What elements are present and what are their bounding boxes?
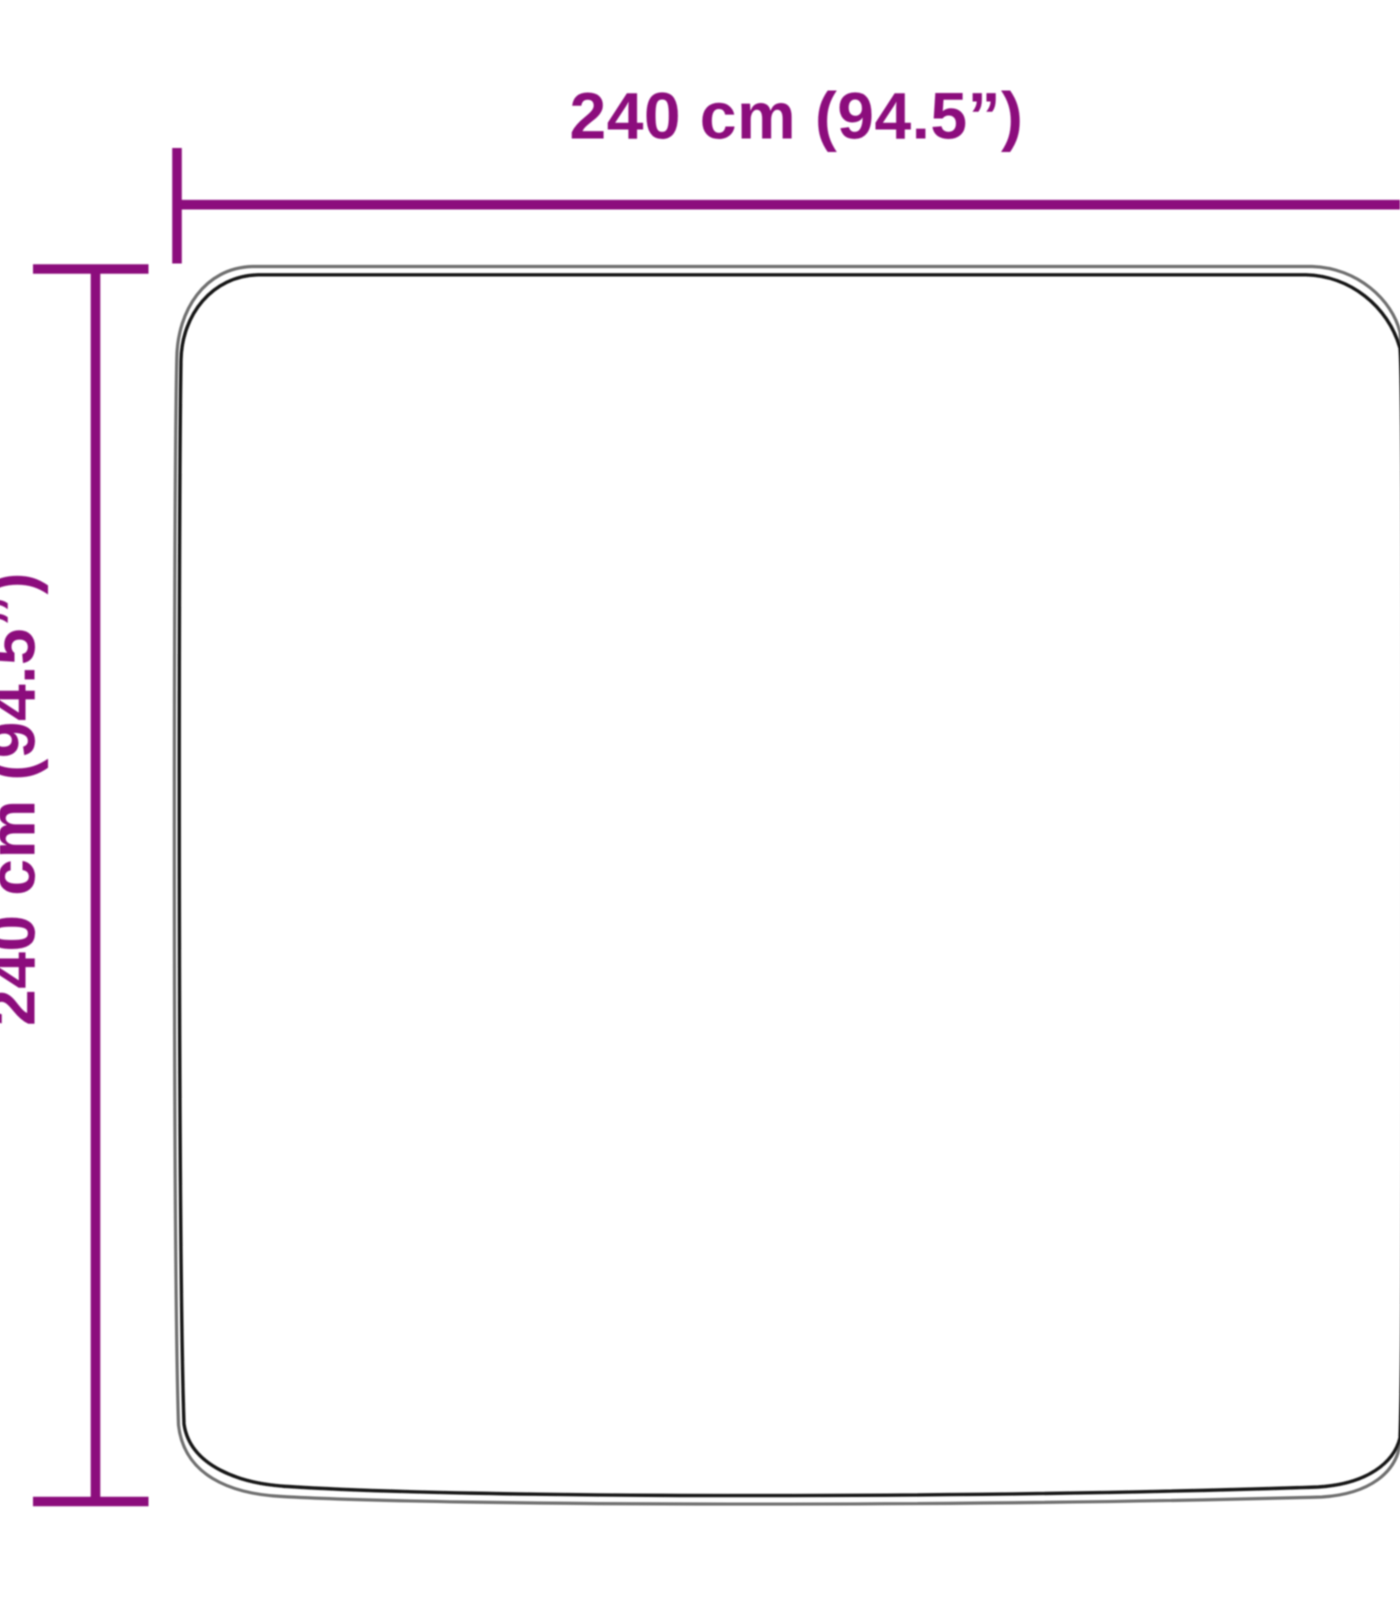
svg-text:240 cm (94.5”): 240 cm (94.5”) [0,572,49,1026]
svg-text:240 cm (94.5”): 240 cm (94.5”) [570,79,1024,153]
